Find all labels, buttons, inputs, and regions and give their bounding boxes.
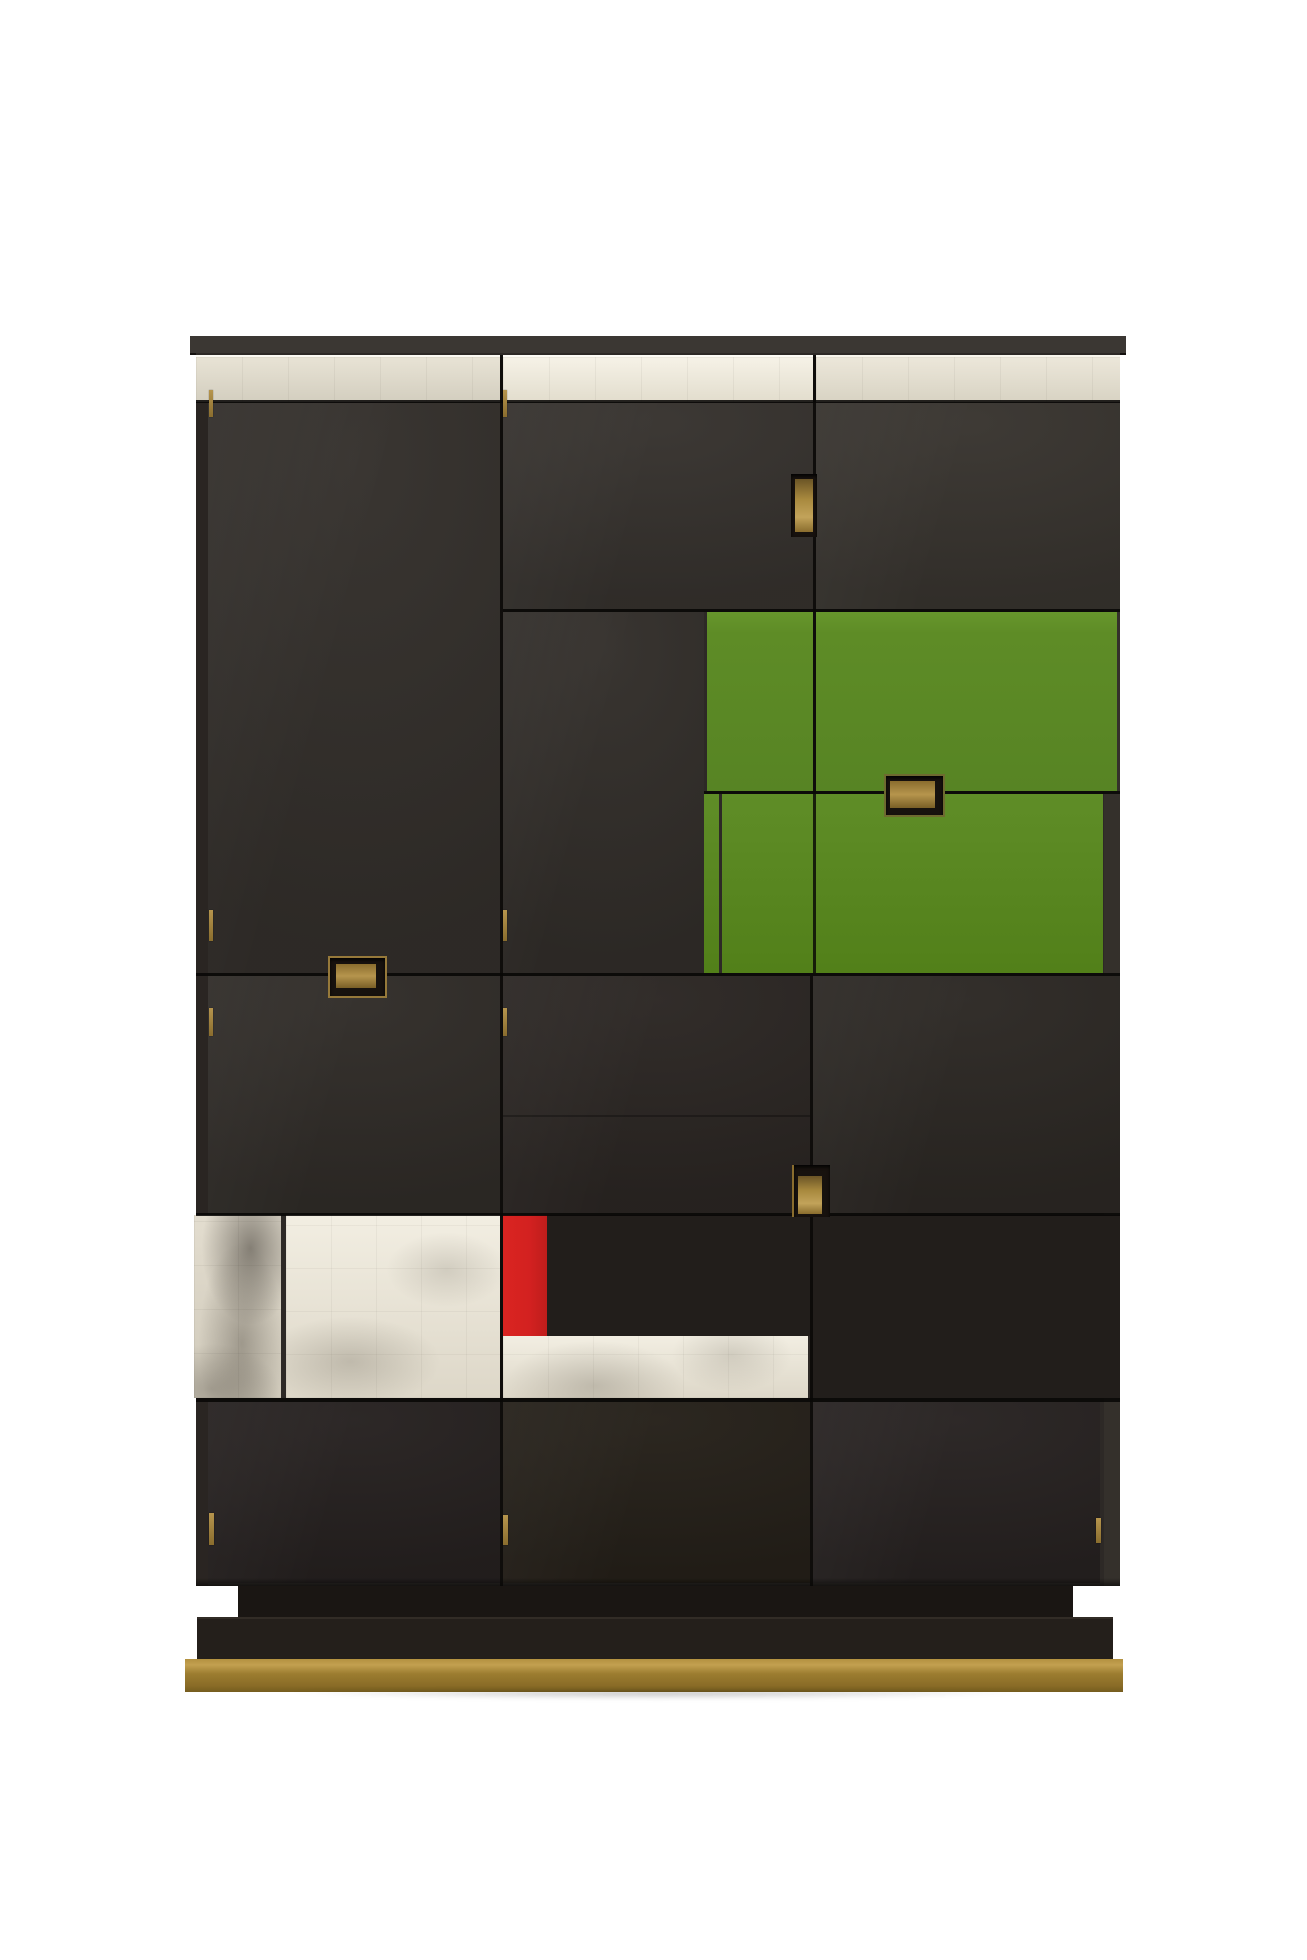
silver-leaf-band-low <box>503 1336 808 1398</box>
column-seam-right-upper <box>813 355 816 973</box>
hinge-pin-center-mid-upper <box>503 910 507 941</box>
center-top-pull-brass <box>795 479 813 532</box>
green-panel-large <box>816 612 1117 791</box>
hinge-pin-left-mid-lower <box>209 1008 213 1036</box>
hinge-pin-left-mid-upper <box>209 910 213 941</box>
green-pull-brass <box>890 781 935 808</box>
photo-canvas <box>0 0 1307 1960</box>
seam-above-feature-row <box>196 1213 1120 1216</box>
bottom-right-door <box>813 1402 1100 1583</box>
floor-shadow <box>190 1691 1126 1702</box>
bottom-center-door <box>503 1402 810 1583</box>
silver-leaf-panel-wide <box>286 1215 500 1398</box>
center-drawer-seam <box>503 1115 810 1117</box>
bottom-left-door <box>208 1402 500 1583</box>
middle-left-lower-door <box>208 976 500 1213</box>
hinge-pin-left-bottom <box>209 1513 214 1545</box>
column-seam-left <box>500 355 503 1586</box>
upper-center-door <box>503 402 813 609</box>
hinge-pin-left-top <box>209 390 213 417</box>
hinge-pin-center-top <box>503 390 507 417</box>
dark-block-center <box>547 1215 810 1336</box>
lower-right-door <box>813 976 1120 1213</box>
upper-right-door <box>816 402 1120 609</box>
recessed-plinth-step <box>238 1586 1073 1617</box>
seam-under-silver-band <box>196 400 1120 403</box>
silver-leaf-top-band-center <box>503 355 813 402</box>
hinge-pin-right-bottom <box>1096 1518 1101 1543</box>
column-seam-right-lower <box>810 976 813 1586</box>
body-bottom-shadow <box>196 1578 1120 1586</box>
left-pull-brass <box>336 964 376 988</box>
green-fall-front-drawer <box>722 794 1103 973</box>
seam-above-green <box>503 609 1120 612</box>
hinge-pin-center-mid-lower <box>503 1008 507 1036</box>
plinth <box>197 1617 1113 1661</box>
seam-above-bottom-row <box>196 1398 1120 1402</box>
silver-leaf-top-band-left <box>196 355 500 402</box>
lower-center-door <box>503 976 810 1213</box>
red-accent-stripe <box>503 1215 547 1336</box>
center-lower-pull-brass <box>798 1176 822 1214</box>
green-panel-small <box>707 612 813 791</box>
brass-base-strip <box>185 1659 1123 1692</box>
green-drawer-side-sliver <box>704 794 719 973</box>
dark-block-right <box>810 1215 1120 1398</box>
silver-leaf-top-band-right <box>816 355 1120 402</box>
hinge-pin-center-bottom <box>503 1515 508 1545</box>
center-dark-panel <box>503 612 704 973</box>
upper-left-tall-door <box>208 402 500 973</box>
silver-leaf-panel-narrow <box>194 1215 281 1398</box>
